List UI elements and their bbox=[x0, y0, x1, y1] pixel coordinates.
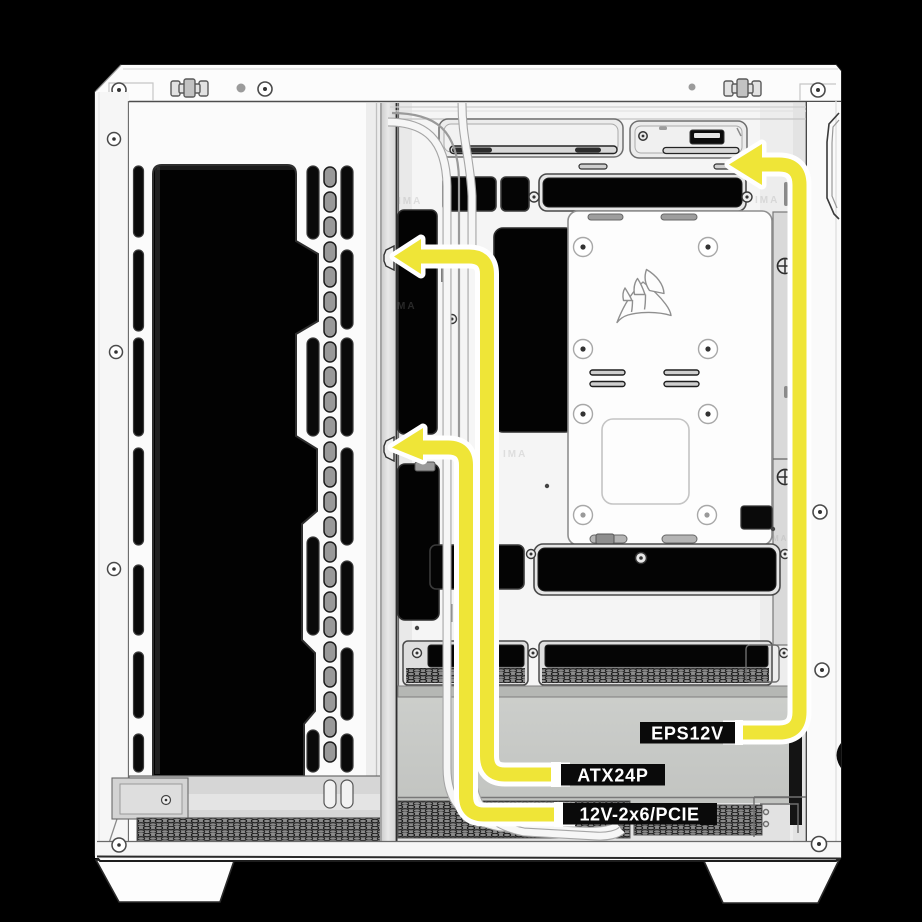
svg-text:ATX24P: ATX24P bbox=[577, 766, 649, 786]
svg-text:IMA: IMA bbox=[755, 195, 779, 206]
svg-text:EPS12V: EPS12V bbox=[651, 724, 724, 744]
svg-text:IMA: IMA bbox=[503, 449, 527, 460]
svg-text:MA: MA bbox=[772, 534, 788, 543]
svg-text:IMA: IMA bbox=[398, 196, 422, 207]
svg-text:12V-2x6/PCIE: 12V-2x6/PCIE bbox=[579, 805, 699, 825]
svg-text:MA: MA bbox=[397, 301, 417, 312]
